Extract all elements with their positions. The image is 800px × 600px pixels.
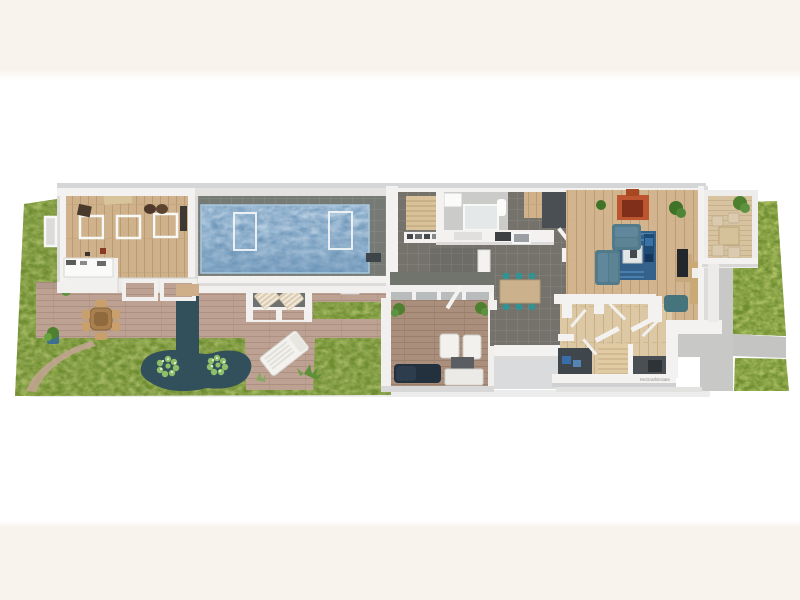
svg-text:McGrathEstate: McGrathEstate xyxy=(640,377,671,382)
